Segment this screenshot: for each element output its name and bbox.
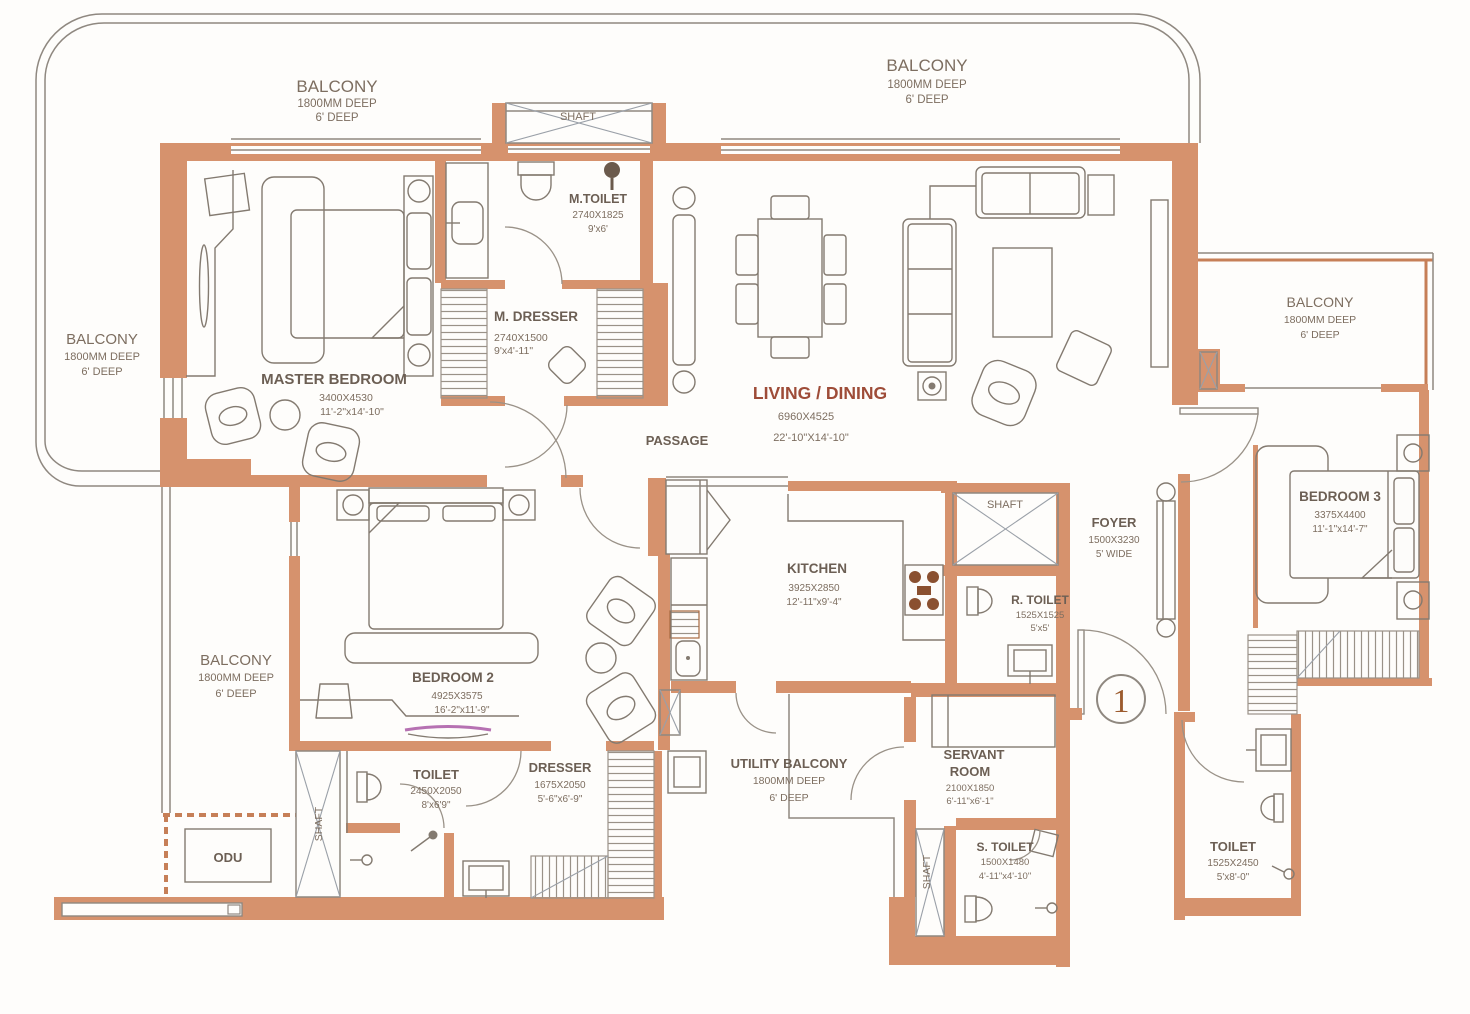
svg-text:KITCHEN: KITCHEN <box>787 561 847 576</box>
svg-text:LIVING / DINING: LIVING / DINING <box>753 383 887 403</box>
svg-text:6' DEEP: 6' DEEP <box>1300 329 1339 341</box>
svg-text:11'-1"x14'-7": 11'-1"x14'-7" <box>1312 524 1368 535</box>
svg-text:11'-2"x14'-10": 11'-2"x14'-10" <box>320 406 384 418</box>
svg-text:BALCONY: BALCONY <box>886 56 967 75</box>
svg-text:1800MM DEEP: 1800MM DEEP <box>887 79 967 91</box>
svg-text:M. DRESSER: M. DRESSER <box>494 309 578 324</box>
svg-text:DRESSER: DRESSER <box>529 760 592 775</box>
svg-text:PASSAGE: PASSAGE <box>646 433 709 448</box>
svg-text:5' WIDE: 5' WIDE <box>1096 549 1133 560</box>
svg-text:6' DEEP: 6' DEEP <box>315 112 358 124</box>
svg-text:1800MM DEEP: 1800MM DEEP <box>297 98 377 110</box>
svg-text:1800MM DEEP: 1800MM DEEP <box>198 672 274 684</box>
svg-text:2740X1825: 2740X1825 <box>572 210 624 221</box>
svg-text:3925X2850: 3925X2850 <box>788 583 840 594</box>
svg-text:1: 1 <box>1113 683 1130 720</box>
svg-text:1500X1480: 1500X1480 <box>981 857 1030 868</box>
svg-text:6960X4525: 6960X4525 <box>778 411 834 423</box>
svg-text:2740X1500: 2740X1500 <box>494 332 548 344</box>
svg-text:12'-11"x9'-4": 12'-11"x9'-4" <box>786 597 842 608</box>
svg-text:MASTER BEDROOM: MASTER BEDROOM <box>261 371 407 388</box>
svg-text:2100X1850: 2100X1850 <box>946 783 995 794</box>
svg-text:FOYER: FOYER <box>1092 515 1137 530</box>
svg-text:R. TOILET: R. TOILET <box>1011 593 1069 607</box>
svg-text:22'-10"X14'-10": 22'-10"X14'-10" <box>773 432 849 444</box>
svg-text:2450X2050: 2450X2050 <box>410 786 462 797</box>
svg-text:SHAFT: SHAFT <box>313 806 325 841</box>
svg-text:M.TOILET: M.TOILET <box>569 192 627 206</box>
svg-text:BEDROOM 2: BEDROOM 2 <box>412 670 494 685</box>
svg-text:6'-11"x6'-1": 6'-11"x6'-1" <box>946 796 993 807</box>
svg-text:9'x4'-11": 9'x4'-11" <box>494 345 533 357</box>
svg-text:5'-6"x6'-9": 5'-6"x6'-9" <box>538 794 583 805</box>
svg-text:16'-2"x11'-9": 16'-2"x11'-9" <box>434 705 490 716</box>
svg-text:BALCONY: BALCONY <box>66 331 138 348</box>
svg-text:1800MM DEEP: 1800MM DEEP <box>753 775 825 787</box>
svg-text:BALCONY: BALCONY <box>1287 294 1355 310</box>
svg-text:4925X3575: 4925X3575 <box>431 691 483 702</box>
svg-text:TOILET: TOILET <box>413 767 459 782</box>
svg-text:BEDROOM 3: BEDROOM 3 <box>1299 489 1381 504</box>
svg-text:6' DEEP: 6' DEEP <box>905 94 948 106</box>
svg-text:BALCONY: BALCONY <box>200 652 272 669</box>
svg-text:6' DEEP: 6' DEEP <box>81 366 122 378</box>
svg-text:1525X2450: 1525X2450 <box>1207 858 1259 869</box>
svg-text:4'-11"x4'-10": 4'-11"x4'-10" <box>979 871 1031 882</box>
svg-text:1800MM DEEP: 1800MM DEEP <box>1284 314 1356 326</box>
svg-text:ODU: ODU <box>214 850 243 865</box>
svg-text:SHAFT: SHAFT <box>987 499 1023 511</box>
svg-text:SHAFT: SHAFT <box>921 854 933 889</box>
svg-text:5'x5': 5'x5' <box>1031 623 1050 634</box>
svg-text:3375X4400: 3375X4400 <box>1314 510 1366 521</box>
svg-text:5'x8'-0": 5'x8'-0" <box>1217 872 1250 883</box>
svg-text:6' DEEP: 6' DEEP <box>769 792 808 804</box>
svg-text:UTILITY BALCONY: UTILITY BALCONY <box>731 756 848 771</box>
svg-text:BALCONY: BALCONY <box>296 77 377 96</box>
svg-text:6' DEEP: 6' DEEP <box>215 688 256 700</box>
svg-text:9'x6': 9'x6' <box>588 224 608 235</box>
svg-text:8'x6'9": 8'x6'9" <box>421 800 451 811</box>
svg-text:1500X3230: 1500X3230 <box>1088 535 1140 546</box>
svg-text:1525X1525: 1525X1525 <box>1016 610 1065 621</box>
svg-text:SHAFT: SHAFT <box>560 111 596 123</box>
svg-text:ROOM: ROOM <box>950 764 990 779</box>
svg-text:S. TOILET: S. TOILET <box>976 840 1034 854</box>
svg-text:SERVANT: SERVANT <box>944 747 1005 762</box>
svg-text:1800MM DEEP: 1800MM DEEP <box>64 351 140 363</box>
svg-text:3400X4530: 3400X4530 <box>319 392 373 404</box>
svg-text:1675X2050: 1675X2050 <box>534 780 586 791</box>
svg-text:TOILET: TOILET <box>1210 839 1256 854</box>
